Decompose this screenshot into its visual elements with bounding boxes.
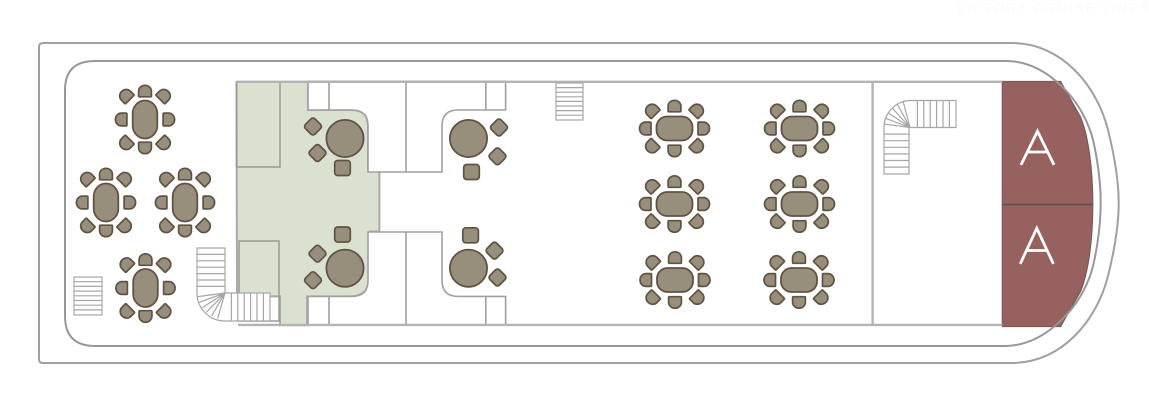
- svg-text:VICTORY CRUISE LINES: VICTORY CRUISE LINES: [956, 0, 1149, 15]
